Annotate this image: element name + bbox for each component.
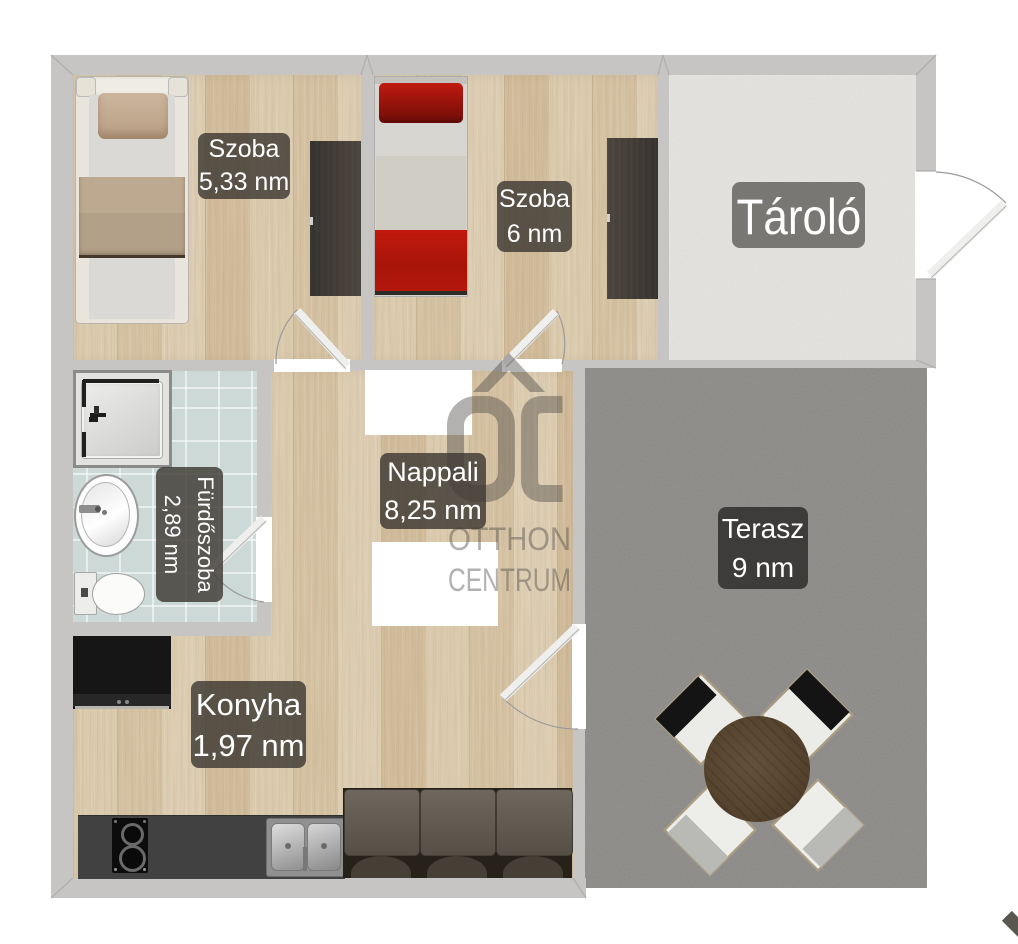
svg-text:CENTRUM: CENTRUM xyxy=(448,562,571,598)
